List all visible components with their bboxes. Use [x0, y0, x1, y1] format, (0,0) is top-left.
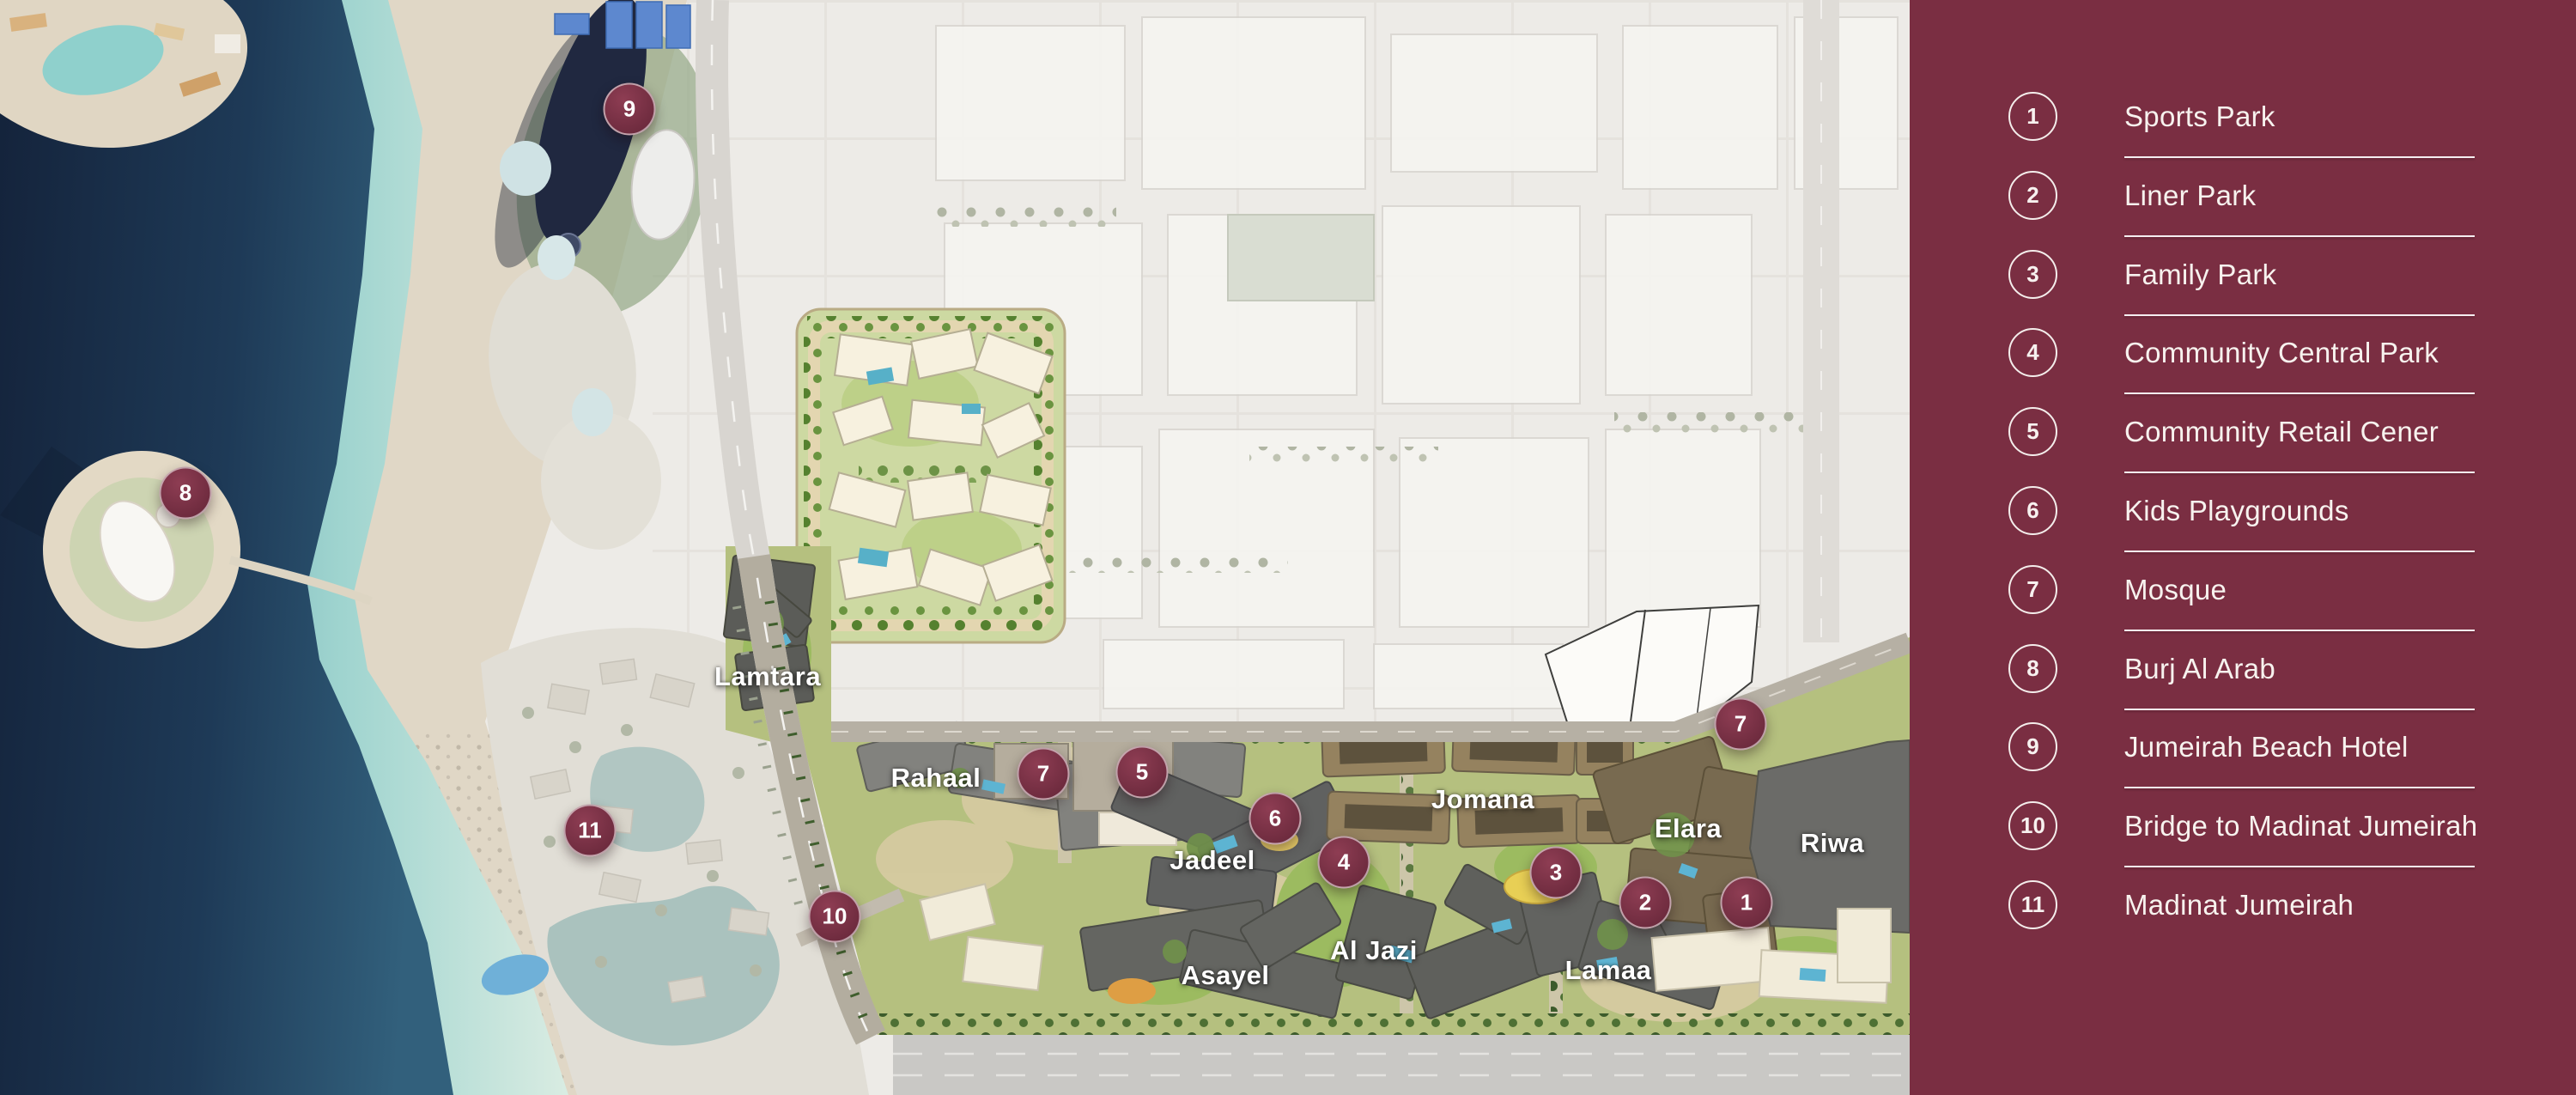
legend-number: 6 — [2026, 497, 2038, 524]
legend-number: 8 — [2026, 655, 2038, 682]
legend-number-badge: 3 — [2008, 250, 2057, 299]
map-marker-7: 7 — [1018, 748, 1070, 800]
legend-number-badge: 6 — [2008, 486, 2057, 535]
legend-label: Bridge to Madinat Jumeirah — [2124, 801, 2477, 851]
district-label-jomana: Jomana — [1431, 784, 1534, 815]
legend-label: Burj Al Arab — [2124, 644, 2275, 694]
district-label-rahaal: Rahaal — [891, 763, 981, 794]
legend-item-3: 3Family Park — [1910, 250, 2576, 300]
map-marker-8: 8 — [160, 467, 212, 520]
legend-label: Jumeirah Beach Hotel — [2124, 722, 2409, 772]
map-marker-10: 10 — [809, 891, 861, 943]
legend-item-2: 2Liner Park — [1910, 171, 2576, 221]
legend-divider — [2124, 630, 2475, 631]
legend-label: Community Central Park — [2124, 328, 2439, 378]
map-marker-7: 7 — [1715, 698, 1767, 751]
legend-label: Sports Park — [2124, 92, 2275, 142]
legend-number-badge: 4 — [2008, 328, 2057, 377]
legend-divider — [2124, 471, 2475, 473]
legend-label: Liner Park — [2124, 171, 2256, 221]
district-label-lamaa: Lamaa — [1565, 955, 1652, 986]
map-marker-6: 6 — [1249, 793, 1302, 845]
legend-divider — [2124, 156, 2475, 158]
legend-number-badge: 1 — [2008, 92, 2057, 141]
legend-item-8: 8Burj Al Arab — [1910, 644, 2576, 694]
map-overlay: LamtaraRahaalJadeelAsayelAl JaziJomanaLa… — [0, 0, 1910, 1095]
legend-number: 9 — [2026, 733, 2038, 760]
legend-number: 2 — [2026, 182, 2038, 209]
legend-divider — [2124, 314, 2475, 316]
legend-number: 4 — [2026, 339, 2038, 366]
legend-label: Mosque — [2124, 565, 2227, 615]
legend-divider — [2124, 709, 2475, 710]
map-marker-number: 9 — [623, 96, 635, 123]
legend-label: Community Retail Cener — [2124, 407, 2439, 457]
satellite-map: LamtaraRahaalJadeelAsayelAl JaziJomanaLa… — [0, 0, 1910, 1095]
legend-label: Kids Playgrounds — [2124, 486, 2349, 536]
legend-divider — [2124, 235, 2475, 237]
map-marker-11: 11 — [564, 805, 617, 857]
legend-number: 7 — [2026, 576, 2038, 603]
district-label-al-jazi: Al Jazi — [1330, 935, 1418, 966]
map-marker-number: 3 — [1550, 860, 1562, 886]
legend-number: 1 — [2026, 103, 2038, 130]
legend-number-badge: 9 — [2008, 722, 2057, 771]
district-label-jadeel: Jadeel — [1170, 845, 1255, 876]
legend-sidebar: 1Sports Park2Liner Park3Family Park4Comm… — [1910, 0, 2576, 1095]
map-marker-number: 7 — [1037, 761, 1049, 788]
legend-item-9: 9Jumeirah Beach Hotel — [1910, 722, 2576, 772]
legend-divider — [2124, 787, 2475, 788]
map-marker-number: 8 — [179, 480, 191, 507]
map-marker-number: 10 — [823, 903, 848, 930]
legend-number: 3 — [2026, 261, 2038, 288]
legend-number-badge: 8 — [2008, 644, 2057, 693]
legend-number-badge: 7 — [2008, 565, 2057, 614]
legend-item-1: 1Sports Park — [1910, 92, 2576, 142]
legend-divider — [2124, 866, 2475, 867]
legend-item-6: 6Kids Playgrounds — [1910, 486, 2576, 536]
legend-divider — [2124, 392, 2475, 394]
legend-label: Madinat Jumeirah — [2124, 880, 2354, 930]
map-marker-number: 1 — [1741, 890, 1753, 916]
legend-item-5: 5Community Retail Cener — [1910, 407, 2576, 457]
map-marker-2: 2 — [1619, 877, 1672, 929]
map-marker-1: 1 — [1721, 877, 1773, 929]
district-label-elara: Elara — [1655, 813, 1722, 844]
map-marker-number: 4 — [1338, 849, 1350, 876]
legend-number-badge: 10 — [2008, 801, 2057, 850]
map-marker-number: 7 — [1735, 711, 1747, 738]
legend-number-badge: 2 — [2008, 171, 2057, 220]
map-marker-number: 11 — [578, 818, 602, 844]
map-marker-5: 5 — [1116, 746, 1169, 799]
legend-label: Family Park — [2124, 250, 2277, 300]
masterplan-infographic: LamtaraRahaalJadeelAsayelAl JaziJomanaLa… — [0, 0, 2576, 1095]
district-label-lamtara: Lamtara — [714, 661, 821, 692]
map-marker-9: 9 — [604, 83, 656, 136]
legend-item-7: 7Mosque — [1910, 565, 2576, 615]
legend-item-10: 10Bridge to Madinat Jumeirah — [1910, 801, 2576, 851]
legend-number: 5 — [2026, 418, 2038, 445]
map-marker-4: 4 — [1318, 836, 1370, 889]
map-marker-number: 6 — [1269, 806, 1281, 832]
district-label-asayel: Asayel — [1182, 960, 1270, 991]
map-marker-3: 3 — [1530, 847, 1583, 899]
legend-item-11: 11Madinat Jumeirah — [1910, 880, 2576, 930]
district-label-riwa: Riwa — [1801, 828, 1864, 859]
legend-number: 11 — [2021, 891, 2045, 918]
legend-divider — [2124, 551, 2475, 552]
map-marker-number: 5 — [1136, 759, 1148, 786]
legend-number-badge: 5 — [2008, 407, 2057, 456]
map-marker-number: 2 — [1639, 890, 1651, 916]
legend-number: 10 — [2020, 812, 2045, 839]
legend-number-badge: 11 — [2008, 880, 2057, 929]
legend-item-4: 4Community Central Park — [1910, 328, 2576, 378]
